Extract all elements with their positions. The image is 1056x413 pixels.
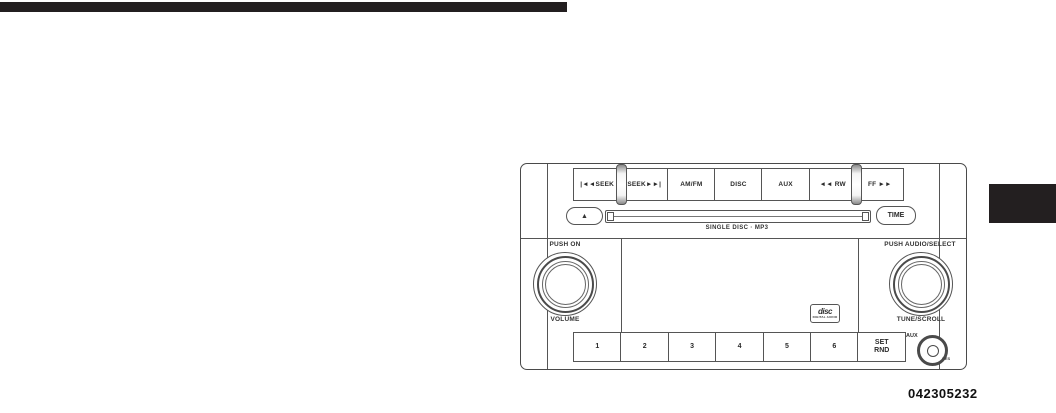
cd-digital-audio-logo: disc DIGITAL AUDIO — [810, 304, 840, 323]
time-button: TIME — [876, 206, 916, 225]
rewind-button: ◄◄ RW — [809, 168, 857, 201]
disc-button: DISC — [714, 168, 762, 201]
eject-button: ▲ — [566, 207, 603, 225]
eject-icon: ▲ — [581, 213, 588, 220]
preset-1-button: 1 — [573, 332, 622, 362]
volume-knob-ring-inner — [542, 261, 589, 308]
faceplate-section-divider — [521, 238, 966, 239]
volume-label: VOLUME — [533, 316, 597, 323]
volume-knob-face — [545, 264, 586, 305]
tune-scroll-knob — [889, 252, 953, 316]
set-label: SET — [875, 339, 889, 347]
seek-back-button: |◄◄SEEK — [573, 168, 621, 201]
aux-button: AUX — [761, 168, 809, 201]
page-edge-tab — [989, 184, 1056, 223]
preset-3-button: 3 — [668, 332, 717, 362]
aux-jack — [917, 335, 948, 366]
push-on-label: PUSH ON — [533, 241, 597, 248]
set-rnd-button: SET RND — [857, 332, 906, 362]
tune-knob-ring-inner — [898, 261, 945, 308]
display-right-edge — [858, 238, 859, 332]
chapter-header-bar — [0, 2, 567, 12]
radio-faceplate-diagram: |◄◄SEEK SEEK►►| AM/FM DISC AUX ◄◄ RW FF … — [520, 163, 967, 370]
cd-slot-left-cap — [607, 212, 614, 221]
preset-button-row: 1 2 3 4 5 6 SET RND — [573, 332, 906, 362]
preset-6-button: 6 — [810, 332, 859, 362]
cd-slot — [605, 210, 871, 223]
push-audio-select-label: PUSH AUDIO/SELECT — [873, 241, 967, 248]
tune-knob-face — [901, 264, 942, 305]
figure-code: 042305232 — [908, 386, 978, 401]
aux-jack-label: AUX — [906, 333, 918, 339]
rnd-label: RND — [874, 347, 889, 355]
preset-2-button: 2 — [620, 332, 669, 362]
scan-roller-knob — [851, 164, 862, 205]
volume-knob — [533, 252, 597, 316]
am-fm-button: AM/FM — [667, 168, 715, 201]
res-label: RES — [942, 356, 950, 361]
volume-knob-ring — [537, 256, 594, 313]
tune-scroll-label: TUNE/SCROLL — [889, 316, 953, 323]
cd-logo-subtext: DIGITAL AUDIO — [813, 316, 838, 319]
display-left-edge — [621, 238, 622, 332]
seek-roller-knob — [616, 164, 627, 205]
cd-slot-right-cap — [862, 212, 869, 221]
tune-knob-ring — [893, 256, 950, 313]
preset-5-button: 5 — [763, 332, 812, 362]
aux-jack-hole — [927, 345, 939, 357]
preset-4-button: 4 — [715, 332, 764, 362]
slot-caption: SINGLE DISC · MP3 — [605, 225, 869, 231]
seek-forward-button: SEEK►►| — [620, 168, 668, 201]
fast-forward-button: FF ►► — [856, 168, 904, 201]
